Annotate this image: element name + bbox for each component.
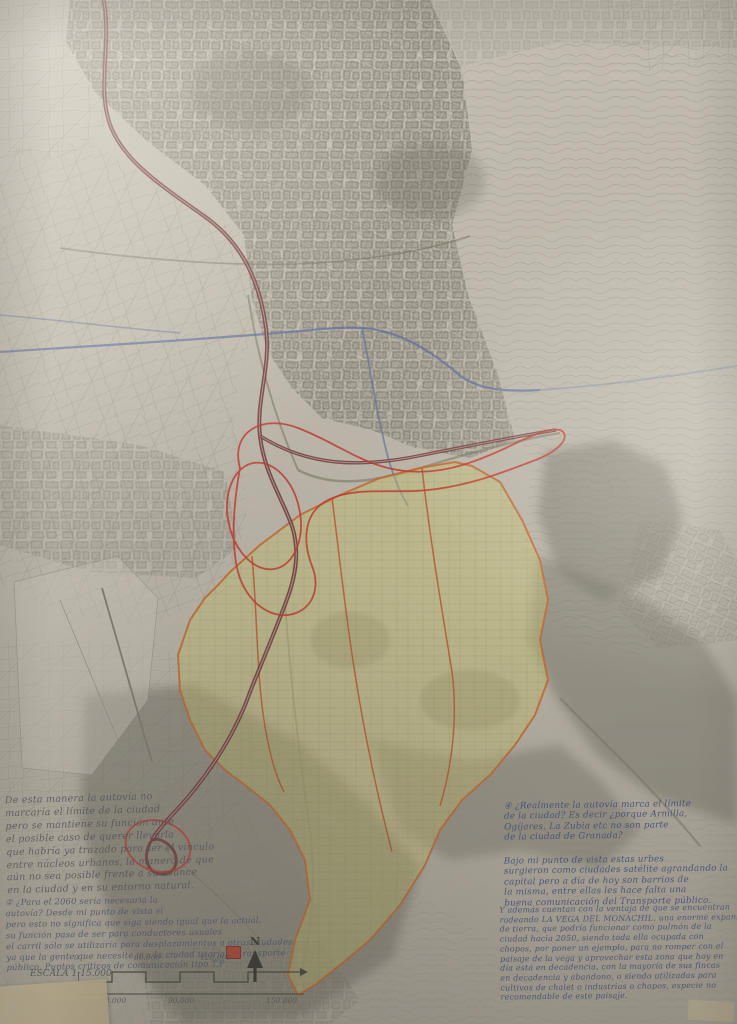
north-arrow-icon — [240, 948, 270, 988]
scale-tick: 0 — [74, 953, 79, 962]
scale-tick: 120.000 — [200, 953, 231, 962]
handwritten-note-right-2: Bajo mi punto de vista estas urbessurgie… — [504, 853, 735, 908]
scale-tick: 90.000 — [168, 996, 194, 1005]
tape-corner — [0, 979, 109, 1024]
photographed-map-sheet: De esta manera la autovía nomarcaría el … — [0, 0, 737, 1024]
scale-tick: 150.000 — [266, 996, 297, 1005]
scale-tick: 60.000 — [134, 953, 160, 962]
handwritten-note-right-3: Y además cuentan con la ventaja de que s… — [499, 902, 735, 1002]
handwritten-note-right-1: ④ ¿Realmente la autovía marca el límited… — [504, 798, 735, 843]
north-label: N — [238, 936, 272, 948]
corner-tag — [688, 1000, 735, 1022]
north-arrow: N — [238, 936, 272, 994]
handwritten-note-left-1: De esta manera la autovía nomarcaría el … — [5, 789, 238, 899]
